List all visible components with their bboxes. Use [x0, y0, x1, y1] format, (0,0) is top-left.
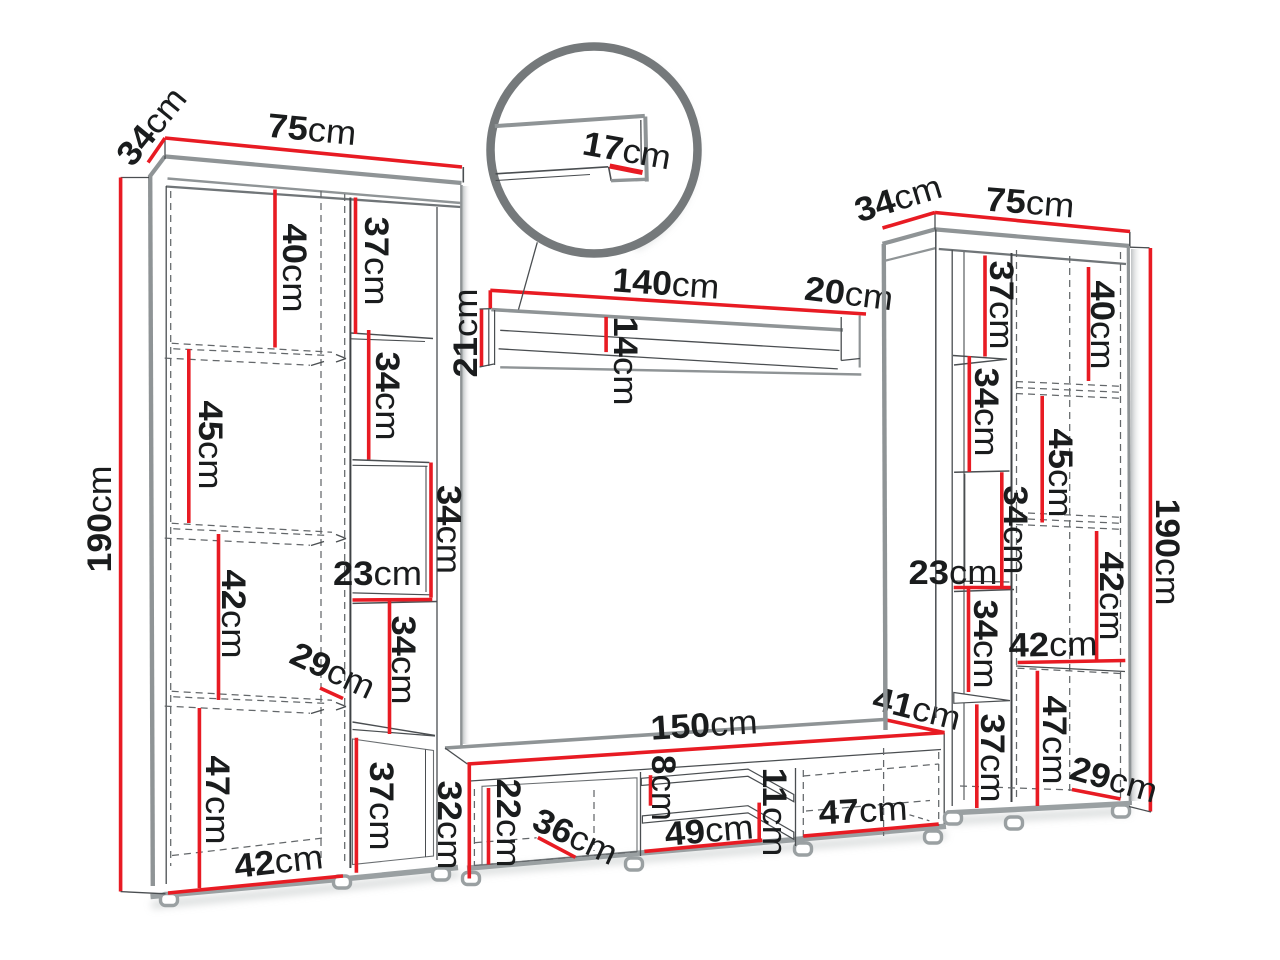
svg-text:34cm: 34cm [430, 485, 468, 574]
svg-text:40cm: 40cm [1083, 281, 1121, 370]
svg-text:34cm: 34cm [384, 616, 422, 705]
svg-text:49cm: 49cm [663, 808, 755, 854]
svg-text:23cm: 23cm [333, 555, 422, 593]
svg-text:11cm: 11cm [755, 768, 793, 857]
svg-text:190cm: 190cm [1148, 499, 1186, 606]
svg-text:47cm: 47cm [198, 756, 236, 845]
svg-text:42cm: 42cm [214, 570, 252, 659]
svg-text:75cm: 75cm [984, 181, 1076, 226]
svg-text:34cm: 34cm [368, 352, 406, 441]
svg-text:34cm: 34cm [966, 600, 1004, 689]
svg-text:190cm: 190cm [81, 466, 119, 573]
svg-text:37cm: 37cm [982, 261, 1020, 350]
svg-text:42cm: 42cm [1092, 552, 1130, 641]
svg-text:34cm: 34cm [967, 368, 1005, 457]
svg-text:45cm: 45cm [191, 401, 229, 490]
svg-text:8cm: 8cm [644, 755, 682, 821]
svg-text:47cm: 47cm [1035, 696, 1073, 785]
svg-text:23cm: 23cm [909, 554, 998, 592]
svg-text:150cm: 150cm [650, 703, 759, 747]
svg-text:47cm: 47cm [818, 790, 909, 833]
svg-text:37cm: 37cm [357, 217, 395, 306]
svg-text:40cm: 40cm [275, 224, 313, 313]
svg-text:34cm: 34cm [996, 486, 1034, 575]
svg-text:14cm: 14cm [606, 317, 644, 406]
svg-text:140cm: 140cm [611, 261, 720, 306]
svg-text:21cm: 21cm [447, 289, 485, 378]
svg-text:37cm: 37cm [362, 762, 400, 851]
svg-text:45cm: 45cm [1041, 429, 1079, 518]
svg-text:42cm: 42cm [1008, 625, 1098, 665]
svg-text:32cm: 32cm [430, 781, 468, 870]
svg-text:37cm: 37cm [973, 714, 1011, 803]
svg-text:22cm: 22cm [489, 779, 527, 868]
